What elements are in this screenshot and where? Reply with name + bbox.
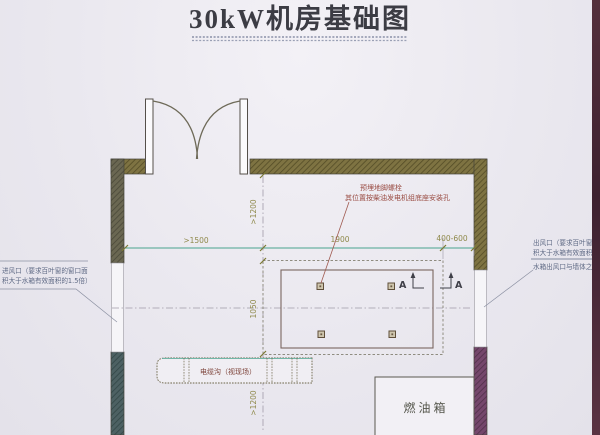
drawing-title: 30kW机房基础图 <box>189 4 411 34</box>
anchor-note-line2: 其位置按柴油发电机组底座安装孔 <box>345 193 450 202</box>
cable-trench: 电缆沟（视现场） <box>157 358 312 383</box>
air-outlet-note-line2: 积大于水箱有效面积的1.5倍） <box>533 248 600 257</box>
dim-left-clearance: >1500 <box>183 236 209 245</box>
floor-plan-svg: 30kW机房基础图 <box>0 0 600 435</box>
door-leaf-right <box>240 99 248 174</box>
section-letter-a-left: A <box>399 280 407 291</box>
wall-right-lower <box>474 347 487 435</box>
fuel-tank: 燃油箱 <box>375 377 474 435</box>
air-inlet-note: 进风口（要求百叶窗的窗口面 积大于水箱有效面积的1.5倍） <box>0 261 117 322</box>
wall-left-upper <box>111 159 124 263</box>
scan-edge-band <box>592 0 600 435</box>
air-inlet-note-leader <box>0 289 117 322</box>
anchor-bolt-note: 预埋地脚螺栓 其位置按柴油发电机组底座安装孔 <box>321 183 450 283</box>
air-outlet-note-line1: 出风口（要求百叶窗的窗口面 <box>533 238 600 247</box>
air-outlet-note: 出风口（要求百叶窗的窗口面 积大于水箱有效面积的1.5倍） 水箱出风口与墙体之间… <box>484 238 600 307</box>
air-inlet-opening <box>112 263 124 352</box>
door-leaf-left <box>146 99 154 174</box>
section-markers: A A <box>399 272 463 291</box>
wall-top-right-segment <box>250 159 487 174</box>
foundation-drawing-scan: 30kW机房基础图 <box>0 0 600 435</box>
air-outlet-opening <box>475 270 487 347</box>
fuel-tank-label: 燃油箱 <box>403 400 448 415</box>
pad-inner-outline <box>281 270 433 348</box>
air-inlet-note-line1: 进风口（要求百叶窗的窗口面 <box>2 266 88 275</box>
dim-right-clearance: 400-600 <box>436 234 468 243</box>
title-underline <box>192 37 408 41</box>
wall-right-upper <box>474 159 487 270</box>
door-swing-arc-right <box>197 101 241 159</box>
air-inlet-note-line2: 积大于水箱有效面积的1.5倍） <box>2 276 92 285</box>
wall-left-lower <box>111 352 124 435</box>
air-outlet-note-leader <box>484 270 533 307</box>
anchor-bolts <box>317 283 396 338</box>
door-swing-arc-left <box>153 101 198 159</box>
dim-pad-depth: 1050 <box>249 299 258 318</box>
dim-pad-width: 1900 <box>330 235 349 244</box>
dim-bottom-clearance: >1200 <box>249 390 258 416</box>
section-letter-a-right: A <box>455 280 463 291</box>
generator-pad <box>263 261 443 355</box>
cable-trench-label: 电缆沟（视现场） <box>200 367 256 376</box>
pad-outer-outline <box>263 261 443 355</box>
anchor-note-line1: 预埋地脚螺栓 <box>360 183 402 192</box>
dimension-chain-horizontal: >1500 1900 400-600 <box>122 234 477 259</box>
air-outlet-note-line3: 水箱出风口与墙体之间装软连接 <box>533 262 600 271</box>
dim-top-clearance: >1200 <box>249 199 258 225</box>
double-door <box>146 99 248 174</box>
